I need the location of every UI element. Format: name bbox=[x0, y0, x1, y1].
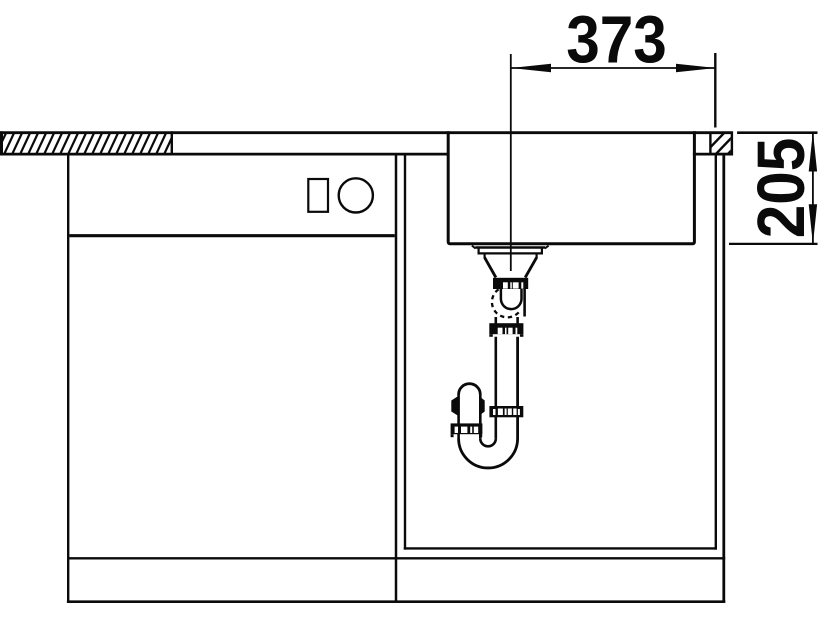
svg-text:373: 373 bbox=[566, 2, 667, 78]
svg-text:205: 205 bbox=[743, 138, 819, 239]
